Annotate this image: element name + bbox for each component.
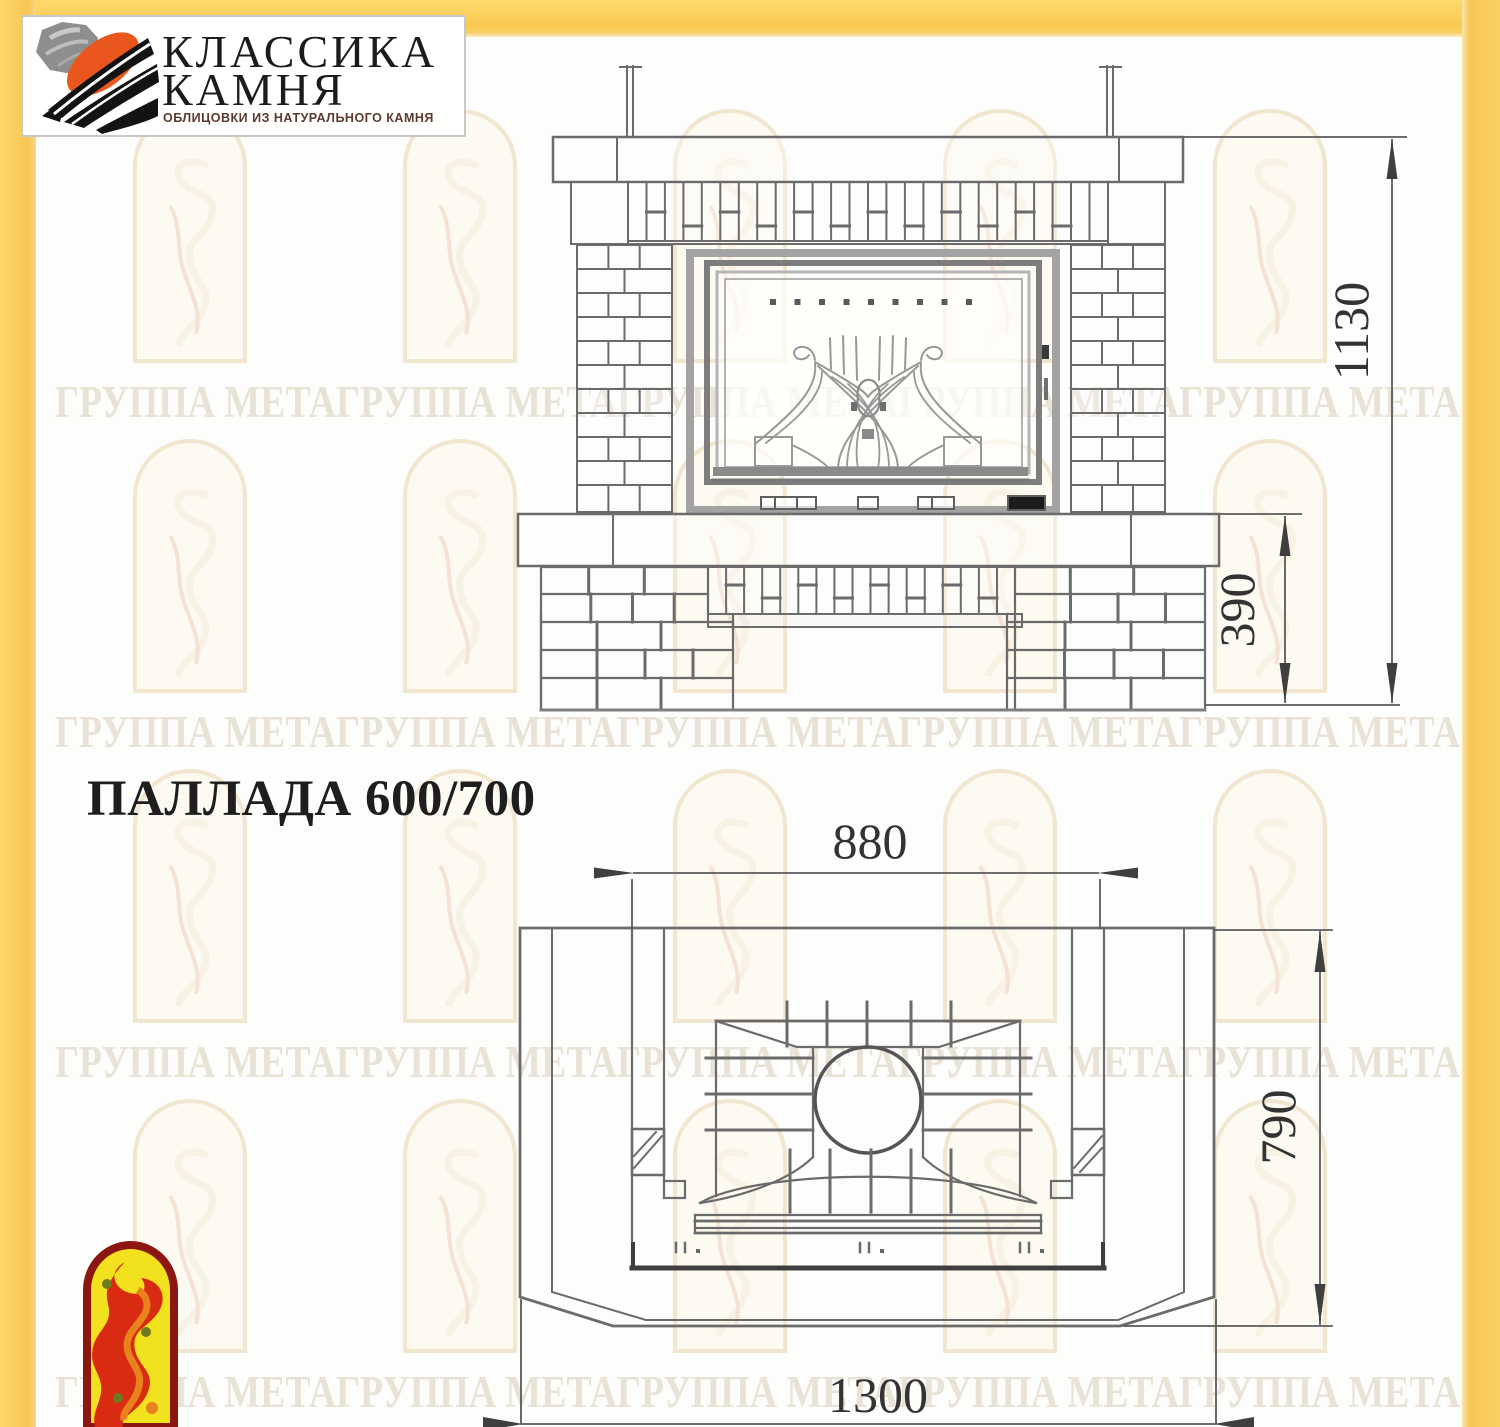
svg-text:1130: 1130 (1323, 282, 1379, 380)
svg-text:390: 390 (1209, 573, 1265, 648)
svg-text:КАМНЯ: КАМНЯ (162, 64, 346, 115)
svg-text:ОБЛИЦОВКИ ИЗ НАТУРАЛЬНОГО КАМН: ОБЛИЦОВКИ ИЗ НАТУРАЛЬНОГО КАМНЯ (163, 111, 434, 125)
svg-text:ГРУППА МЕТАГРУППА МЕТАГРУППА М: ГРУППА МЕТАГРУППА МЕТАГРУППА МЕТАГРУППА … (55, 707, 1460, 757)
svg-text:ГРУППА МЕТАГРУППА МЕТАГРУППА М: ГРУППА МЕТАГРУППА МЕТАГРУППА МЕТАГРУППА … (55, 1367, 1460, 1417)
svg-text:ПАЛЛАДА 600/700: ПАЛЛАДА 600/700 (87, 771, 536, 827)
svg-text:1300: 1300 (828, 1367, 928, 1423)
svg-text:880: 880 (833, 813, 908, 869)
svg-text:790: 790 (1250, 1090, 1306, 1165)
svg-text:ГРУППА МЕТАГРУППА МЕТАГРУППА М: ГРУППА МЕТАГРУППА МЕТАГРУППА МЕТАГРУППА … (55, 1037, 1460, 1087)
